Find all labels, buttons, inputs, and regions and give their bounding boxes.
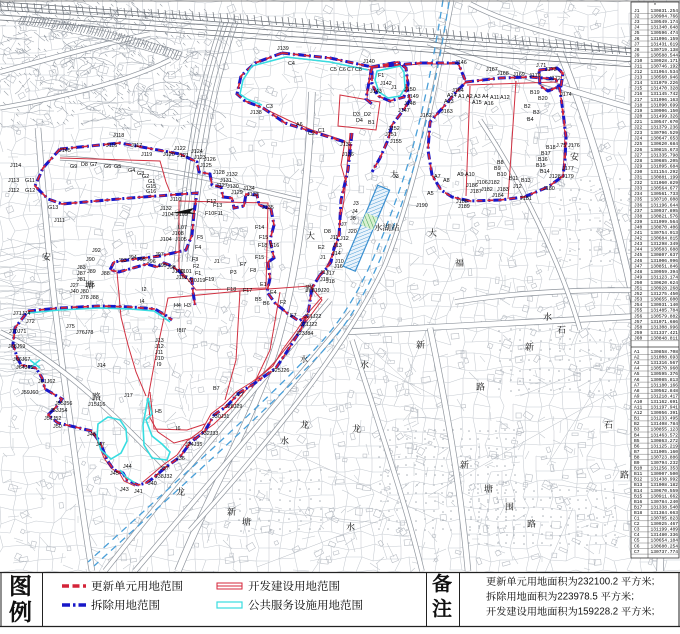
svg-text:131340.648: 131340.648 — [651, 25, 679, 31]
svg-text:J88: J88 — [101, 271, 110, 277]
svg-text:J43: J43 — [120, 487, 129, 493]
svg-text:A2: A2 — [634, 355, 640, 361]
svg-text:J13: J13 — [333, 243, 342, 249]
svg-text:131006.996: 131006.996 — [651, 258, 679, 264]
svg-text:I2: I2 — [142, 287, 147, 293]
svg-text:J30J31: J30J31 — [212, 414, 229, 420]
svg-text:130785.823: 130785.823 — [651, 516, 679, 522]
svg-text:A6: A6 — [296, 122, 303, 128]
svg-text:J37: J37 — [634, 208, 643, 214]
svg-text:130620.684: 130620.684 — [651, 141, 679, 147]
svg-text:J72: J72 — [26, 319, 35, 325]
svg-text:J31: J31 — [634, 175, 643, 181]
svg-text:B10: B10 — [634, 466, 643, 472]
svg-text:J29: J29 — [634, 163, 643, 169]
svg-text:B2: B2 — [524, 104, 531, 110]
svg-text:F16: F16 — [270, 243, 279, 249]
svg-text:J26: J26 — [634, 147, 643, 153]
svg-text:J1: J1 — [320, 255, 326, 261]
svg-text:131162.691: 131162.691 — [651, 399, 679, 405]
svg-text:130821.576: 130821.576 — [651, 213, 679, 219]
svg-text:J10: J10 — [634, 58, 643, 64]
svg-text:131384.663: 131384.663 — [651, 510, 679, 516]
svg-text:J181: J181 — [520, 196, 532, 202]
svg-text:130851.846: 130851.846 — [651, 263, 679, 269]
svg-text:J7: J7 — [634, 41, 640, 47]
svg-text:130654.184: 130654.184 — [651, 538, 679, 544]
svg-text:131125.219: 131125.219 — [651, 443, 679, 449]
svg-text:B12: B12 — [634, 477, 643, 483]
svg-text:J120: J120 — [163, 152, 175, 158]
svg-text:130881.199: 130881.199 — [651, 175, 679, 181]
svg-text:J27: J27 — [235, 392, 244, 398]
svg-text:J145: J145 — [59, 148, 71, 154]
svg-text:J135: J135 — [262, 205, 274, 211]
svg-text:;: ; — [631, 591, 634, 602]
svg-text:J99: J99 — [158, 263, 167, 269]
svg-text:J3: J3 — [634, 19, 640, 25]
svg-text:J180: J180 — [543, 186, 555, 192]
svg-text:J11: J11 — [634, 64, 643, 70]
svg-text:J.75: J.75 — [556, 143, 566, 149]
svg-text:J89: J89 — [87, 269, 96, 275]
svg-text:A12: A12 — [500, 95, 510, 101]
svg-text:130710.608: 130710.608 — [651, 197, 679, 203]
svg-text:J52: J52 — [634, 291, 643, 297]
svg-text:J51J52: J51J52 — [44, 416, 61, 422]
svg-text:I8I7: I8I7 — [177, 328, 186, 334]
svg-text:131438.992: 131438.992 — [651, 477, 679, 483]
svg-text:C3: C3 — [266, 104, 273, 110]
svg-text:J176: J176 — [568, 143, 580, 149]
svg-text:J12: J12 — [513, 184, 522, 190]
svg-text:A7: A7 — [434, 174, 441, 180]
svg-text:130906.150: 130906.150 — [651, 108, 679, 114]
svg-text:;: ; — [652, 606, 655, 617]
svg-text:131090.699: 131090.699 — [651, 102, 679, 108]
svg-text:J55: J55 — [634, 308, 643, 314]
svg-text:J75: J75 — [66, 324, 75, 330]
svg-text:J114: J114 — [10, 163, 21, 169]
svg-text:A10: A10 — [634, 399, 643, 405]
svg-text:J174: J174 — [560, 92, 572, 98]
svg-text:J66J67: J66J67 — [13, 357, 30, 363]
svg-text:F18: F18 — [227, 287, 236, 293]
svg-text:130907.500: 130907.500 — [651, 471, 679, 477]
svg-text:C7: C7 — [347, 67, 354, 73]
svg-text:131338.540: 131338.540 — [651, 504, 679, 510]
svg-text:131095.684: 131095.684 — [651, 163, 679, 169]
svg-text:131199.489: 131199.489 — [651, 527, 679, 533]
svg-text:130925.467: 130925.467 — [651, 521, 679, 527]
svg-text:J117: J117 — [131, 143, 142, 149]
svg-text:I4: I4 — [140, 299, 145, 305]
svg-text:131096.159: 131096.159 — [651, 36, 679, 42]
svg-text:A9: A9 — [457, 172, 464, 178]
svg-text:J143: J143 — [370, 89, 382, 95]
svg-text:J21: J21 — [634, 119, 643, 125]
svg-text:E2: E2 — [318, 245, 325, 251]
svg-text:A8: A8 — [634, 388, 640, 394]
svg-text:B5: B5 — [255, 297, 262, 303]
svg-text:J7: J7 — [341, 222, 347, 228]
svg-text:A5: A5 — [634, 371, 640, 377]
svg-text:J6: J6 — [634, 36, 640, 42]
svg-text:J27: J27 — [634, 152, 643, 158]
svg-text:A8: A8 — [443, 178, 450, 184]
svg-text:J90: J90 — [86, 257, 95, 263]
svg-text:A10: A10 — [465, 172, 475, 178]
svg-text:J119: J119 — [141, 152, 152, 158]
svg-text:130719.138: 130719.138 — [651, 47, 679, 53]
svg-text:F2: F2 — [193, 264, 199, 270]
svg-text:J59J60: J59J60 — [21, 390, 38, 396]
svg-text:J14: J14 — [634, 80, 643, 86]
svg-text:J92: J92 — [92, 248, 101, 254]
svg-text:J18: J18 — [634, 102, 643, 108]
svg-text:J179: J179 — [562, 174, 574, 180]
svg-text:J97: J97 — [155, 252, 164, 258]
svg-text:A15: A15 — [472, 100, 482, 106]
svg-text:J94: J94 — [128, 255, 137, 261]
svg-text:J3: J3 — [393, 174, 399, 180]
svg-text:130595.376: 130595.376 — [651, 371, 679, 377]
svg-text:A12: A12 — [634, 410, 643, 416]
svg-text:130784.240: 130784.240 — [651, 499, 679, 505]
svg-text:J12: J12 — [634, 69, 643, 75]
svg-text:J96: J96 — [147, 259, 156, 265]
svg-text:J169: J169 — [513, 72, 525, 78]
svg-text:J128: J128 — [549, 174, 561, 180]
svg-text:F14: F14 — [255, 225, 264, 231]
svg-text:J118: J118 — [113, 133, 124, 139]
svg-text:B1: B1 — [634, 416, 640, 422]
svg-text:A1: A1 — [634, 349, 640, 355]
svg-text:B4: B4 — [634, 432, 640, 438]
svg-text:G6: G6 — [104, 164, 111, 170]
svg-text:B6: B6 — [634, 443, 640, 449]
svg-text:131180.166: 131180.166 — [651, 382, 679, 388]
svg-text:J150: J150 — [404, 87, 416, 93]
svg-text:J18: J18 — [320, 277, 329, 283]
svg-text:J138: J138 — [250, 110, 262, 116]
svg-text:G4: G4 — [128, 168, 135, 174]
svg-text:F10F11: F10F11 — [205, 211, 223, 217]
svg-text:J20: J20 — [634, 113, 643, 119]
svg-text:130746.192: 130746.192 — [651, 64, 679, 70]
svg-text:;: ; — [652, 576, 655, 587]
svg-text:C6: C6 — [634, 543, 640, 549]
svg-text:C1: C1 — [318, 128, 325, 134]
svg-text:J16: J16 — [334, 264, 343, 270]
svg-text:J104: J104 — [162, 212, 174, 218]
svg-text:B13: B13 — [521, 178, 531, 184]
svg-text:G11: G11 — [25, 178, 35, 184]
svg-text:J46: J46 — [634, 258, 643, 264]
svg-text:131256.353: 131256.353 — [651, 466, 679, 472]
svg-text:J11: J11 — [330, 235, 338, 241]
svg-text:130807.637: 130807.637 — [651, 252, 679, 258]
svg-text:232100.2: 232100.2 — [578, 577, 618, 588]
svg-text:J88: J88 — [90, 295, 99, 301]
svg-text:B9: B9 — [634, 460, 640, 466]
svg-text:C3: C3 — [634, 527, 640, 533]
svg-text:J17: J17 — [320, 270, 329, 276]
svg-text:B14: B14 — [634, 488, 643, 494]
svg-text:J142: J142 — [380, 81, 392, 87]
svg-text:J28: J28 — [634, 158, 643, 164]
svg-text:131499.326: 131499.326 — [651, 113, 679, 119]
svg-text:130985.813: 130985.813 — [651, 377, 679, 383]
svg-text:J38J32: J38J32 — [155, 474, 172, 480]
svg-text:A13: A13 — [444, 99, 454, 105]
svg-text:J25: J25 — [634, 141, 643, 147]
svg-text:B15: B15 — [634, 493, 643, 499]
svg-text:J40: J40 — [634, 225, 643, 231]
svg-text:J13: J13 — [634, 75, 643, 81]
svg-text:130684.815: 130684.815 — [651, 236, 679, 242]
svg-text:H5: H5 — [155, 409, 162, 415]
svg-text:G7: G7 — [90, 162, 97, 168]
svg-text:130583.688: 130583.688 — [651, 247, 679, 253]
svg-text:J35: J35 — [634, 197, 643, 203]
svg-text:J15J16: J15J16 — [88, 402, 105, 408]
svg-text:130870.406: 130870.406 — [651, 225, 679, 231]
svg-text:C7: C7 — [634, 549, 640, 555]
svg-text:131218.417: 131218.417 — [651, 393, 679, 399]
svg-text:J44: J44 — [123, 464, 132, 470]
svg-text:B18: B18 — [634, 510, 643, 516]
svg-text:J105: J105 — [175, 237, 187, 243]
svg-text:J168: J168 — [497, 71, 509, 77]
svg-text:J36: J36 — [176, 456, 185, 462]
svg-text:H4: H4 — [174, 303, 181, 309]
svg-text:F2: F2 — [280, 300, 286, 306]
svg-text:C4: C4 — [634, 532, 640, 538]
svg-text:J129: J129 — [231, 190, 243, 196]
svg-text:J148: J148 — [404, 101, 416, 107]
svg-text:F1: F1 — [378, 73, 384, 79]
svg-text:J110: J110 — [170, 197, 181, 203]
svg-text:C2: C2 — [308, 131, 315, 137]
svg-text:F15: F15 — [259, 235, 268, 241]
svg-text:J102: J102 — [176, 275, 188, 281]
svg-text:J40: J40 — [148, 481, 157, 487]
svg-text:131196.644: 131196.644 — [651, 202, 679, 208]
svg-text:A1: A1 — [458, 94, 465, 100]
svg-text:J50: J50 — [634, 280, 643, 286]
svg-text:J14: J14 — [332, 251, 341, 257]
svg-text:130549.174: 130549.174 — [651, 19, 679, 25]
svg-text:J45: J45 — [110, 471, 119, 477]
svg-text:J24: J24 — [634, 136, 643, 142]
svg-text:131316.567: 131316.567 — [651, 360, 679, 366]
svg-text:J57: J57 — [634, 319, 643, 325]
svg-text:B1: B1 — [368, 120, 375, 126]
svg-text:130547.670: 130547.670 — [651, 119, 679, 125]
svg-text:J121: J121 — [177, 153, 189, 159]
svg-text:130928.171: 130928.171 — [651, 58, 679, 64]
svg-text:130579.882: 130579.882 — [651, 313, 679, 319]
svg-text:J36: J36 — [634, 202, 643, 208]
svg-text:F19: F19 — [205, 277, 214, 283]
svg-text:130904.766: 130904.766 — [651, 14, 679, 20]
svg-text:131064.534: 131064.534 — [651, 69, 679, 75]
svg-text:I9: I9 — [157, 362, 162, 368]
svg-text:J147: J147 — [398, 108, 410, 114]
svg-text:130754.913: 130754.913 — [651, 230, 679, 236]
svg-text:B16: B16 — [634, 499, 643, 505]
svg-text:J170: J170 — [529, 73, 541, 79]
svg-text:C5: C5 — [634, 538, 640, 544]
svg-text:131379.236: 131379.236 — [651, 125, 679, 131]
svg-text:130737.774: 130737.774 — [651, 549, 679, 555]
svg-text:J155: J155 — [390, 139, 402, 145]
svg-text:J125: J125 — [200, 163, 212, 169]
svg-text:J189: J189 — [458, 204, 470, 210]
svg-text:C2: C2 — [634, 521, 640, 527]
svg-text:J127: J127 — [216, 183, 228, 189]
svg-text:130655.600: 130655.600 — [651, 297, 679, 303]
svg-text:J47: J47 — [634, 263, 643, 269]
svg-text:J40: J40 — [70, 289, 79, 295]
svg-text:J45: J45 — [634, 252, 643, 258]
svg-text:131079.226: 131079.226 — [651, 80, 679, 86]
svg-text:J38: J38 — [634, 213, 643, 219]
svg-text:F4: F4 — [195, 245, 201, 251]
svg-text:G9: G9 — [70, 164, 77, 170]
svg-text:J48: J48 — [634, 269, 643, 275]
svg-text:130560.946: 130560.946 — [651, 75, 679, 81]
svg-text:J76J78: J76J78 — [76, 330, 93, 336]
svg-text:D2: D2 — [364, 112, 371, 118]
svg-text:131470.328: 131470.328 — [651, 86, 679, 92]
svg-text:J54: J54 — [634, 302, 643, 308]
svg-text:D8: D8 — [81, 162, 88, 168]
svg-text:J78: J78 — [80, 295, 89, 301]
svg-text:J34J35: J34J35 — [185, 442, 202, 448]
svg-text:J3: J3 — [353, 201, 359, 207]
svg-text:131099.564: 131099.564 — [651, 219, 679, 225]
svg-text:J70J71: J70J71 — [9, 329, 26, 335]
svg-text:F5: F5 — [197, 235, 203, 241]
svg-text:J30: J30 — [634, 169, 643, 175]
svg-text:131337.421: 131337.421 — [651, 330, 679, 336]
svg-text:159228.2: 159228.2 — [578, 607, 618, 618]
svg-text:B7: B7 — [634, 449, 640, 455]
svg-text:J39: J39 — [634, 219, 643, 225]
svg-text:B11: B11 — [634, 471, 643, 477]
svg-text:130685.205: 130685.205 — [651, 158, 679, 164]
svg-text:J149: J149 — [407, 94, 419, 100]
svg-text:131145.742: 131145.742 — [651, 91, 679, 97]
svg-text:J23J84: J23J84 — [296, 331, 313, 337]
svg-text:C1: C1 — [634, 516, 640, 522]
svg-text:J173: J173 — [545, 67, 557, 73]
svg-text:H3: H3 — [184, 303, 191, 309]
svg-text:130911.662: 130911.662 — [651, 493, 679, 499]
svg-text:J25J26: J25J26 — [272, 368, 289, 374]
svg-text:J167: J167 — [486, 67, 498, 73]
svg-text:J61J62: J61J62 — [38, 379, 55, 385]
svg-text:J136: J136 — [342, 152, 354, 158]
svg-text:131463.572: 131463.572 — [651, 432, 679, 438]
svg-text:C8: C8 — [355, 67, 362, 73]
svg-text:C6: C6 — [339, 67, 346, 73]
svg-text:130937.895: 130937.895 — [651, 208, 679, 214]
svg-text:J1: J1 — [391, 85, 397, 91]
svg-text:130562.848: 130562.848 — [651, 388, 679, 394]
svg-text:I6: I6 — [176, 426, 181, 432]
svg-text:J1: J1 — [214, 259, 220, 265]
svg-text:131008.693: 131008.693 — [651, 355, 679, 361]
svg-text:131008.182: 131008.182 — [651, 482, 679, 488]
svg-text:J41: J41 — [634, 230, 643, 236]
svg-text:B3: B3 — [533, 110, 540, 116]
svg-text:J8: J8 — [634, 47, 640, 53]
svg-text:A9: A9 — [634, 393, 640, 399]
svg-text:F3: F3 — [192, 257, 198, 263]
svg-text:J140: J140 — [363, 59, 375, 65]
svg-text:J44: J44 — [634, 247, 643, 253]
svg-text:J95: J95 — [137, 257, 146, 263]
svg-text:131060.829: 131060.829 — [651, 180, 679, 186]
svg-text:F18: F18 — [258, 243, 267, 249]
svg-text:130858.708: 130858.708 — [651, 349, 679, 355]
svg-text:130931.140: 130931.140 — [651, 302, 679, 308]
svg-text:F7: F7 — [240, 262, 246, 268]
svg-text:J1: J1 — [634, 8, 640, 14]
svg-text:A16: A16 — [484, 101, 494, 107]
svg-text:F17: F17 — [243, 288, 252, 294]
svg-text:130561.733: 130561.733 — [651, 191, 679, 197]
svg-text:E7: E7 — [290, 313, 297, 319]
svg-text:B11: B11 — [509, 176, 518, 182]
svg-text:J5: J5 — [634, 30, 640, 36]
svg-text:J133: J133 — [247, 192, 259, 198]
svg-text:131005.160: 131005.160 — [651, 449, 679, 455]
svg-text:J182: J182 — [488, 180, 500, 186]
svg-text:J163: J163 — [441, 109, 453, 115]
svg-text:J34: J34 — [634, 191, 643, 197]
svg-text:131096.163: 131096.163 — [651, 97, 679, 103]
svg-text:J19: J19 — [634, 108, 643, 114]
svg-text:A3: A3 — [634, 360, 640, 366]
svg-text:J37: J37 — [160, 466, 169, 472]
svg-text:130596.474: 130596.474 — [651, 30, 679, 36]
svg-text:F13: F13 — [213, 203, 222, 209]
svg-text:J187: J187 — [470, 189, 482, 195]
svg-text:B5: B5 — [634, 438, 640, 444]
svg-text:D4: D4 — [356, 118, 363, 124]
svg-text:J58: J58 — [634, 324, 643, 330]
svg-text:J43: J43 — [634, 241, 643, 247]
svg-text:J101: J101 — [180, 269, 192, 275]
svg-text:J190: J190 — [416, 203, 428, 209]
svg-text:J51: J51 — [634, 286, 643, 292]
svg-text:E4: E4 — [270, 290, 277, 296]
svg-text:J68J69: J68J69 — [8, 344, 25, 350]
svg-text:G12: G12 — [25, 188, 35, 194]
svg-text:130815.673: 130815.673 — [651, 147, 679, 153]
svg-text:130620.624: 130620.624 — [651, 280, 679, 286]
svg-text:J122: J122 — [174, 146, 186, 152]
svg-text:C4: C4 — [288, 61, 295, 67]
svg-text:B13: B13 — [634, 482, 643, 488]
svg-text:130928.268: 130928.268 — [651, 286, 679, 292]
svg-text:J111: J111 — [54, 218, 65, 224]
svg-text:131154.292: 131154.292 — [651, 169, 679, 175]
